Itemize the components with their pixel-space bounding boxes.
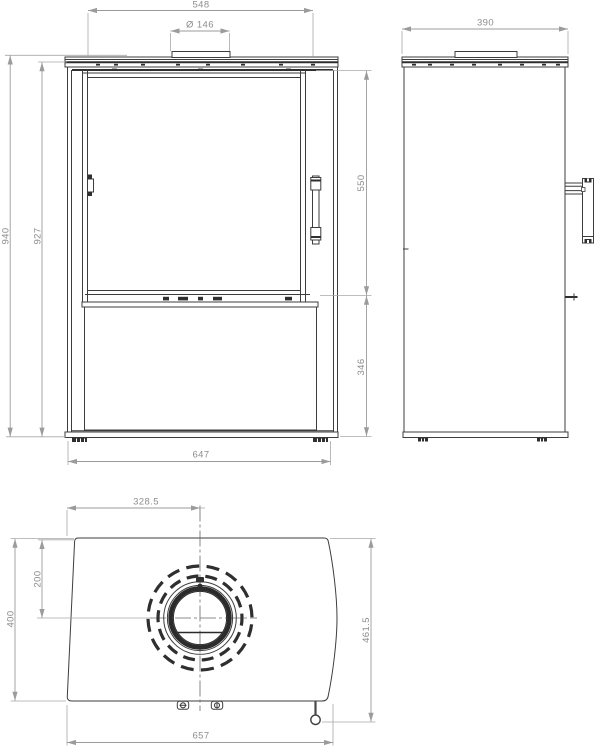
front-vent-band (82, 295, 318, 308)
side-view: 390 (402, 18, 594, 442)
side-door-handle (565, 179, 594, 244)
top-body-outline (67, 538, 337, 701)
front-top-plate (65, 57, 338, 71)
dim-front-base-height: 346 (340, 296, 372, 437)
dim-label-front-overall-height: 940 (1, 227, 12, 244)
side-feet (418, 438, 547, 442)
dim-front-body-height: 927 (33, 62, 68, 437)
side-air-lever (565, 294, 578, 301)
side-body (403, 67, 565, 432)
front-flue-collar (172, 52, 230, 58)
front-view: 548 Ø 146 940 927 550 (1, 0, 372, 465)
dim-label-top-flue-offset-y: 200 (33, 570, 44, 587)
dim-label-front-top-width: 548 (192, 0, 209, 11)
dim-label-top-overall-depth: 461.5 (361, 617, 372, 643)
front-door-handle (311, 176, 321, 244)
dim-top-flue-offset-x: 328.5 (67, 497, 205, 537)
dim-label-side-depth: 390 (477, 18, 494, 29)
dim-label-front-base-height: 346 (356, 358, 367, 375)
stove-technical-drawing: 548 Ø 146 940 927 550 (0, 0, 600, 750)
dim-label-top-flue-offset-x: 328.5 (133, 497, 159, 508)
side-flue-collar (455, 52, 517, 58)
drawing-canvas: 548 Ø 146 940 927 550 (0, 0, 600, 750)
dim-front-flue-diameter: Ø 146 (171, 20, 230, 52)
top-view: 328.5 200 400 461.5 657 (6, 497, 376, 746)
dim-front-door-height: 550 (316, 71, 372, 296)
side-bottom-plate (403, 432, 568, 438)
front-door-hinge (88, 175, 94, 197)
dim-side-depth: 390 (402, 18, 568, 55)
front-feet (72, 438, 328, 443)
front-base-panel (85, 307, 317, 430)
dim-label-top-body-depth: 400 (6, 610, 17, 627)
dim-label-front-body-height: 927 (33, 227, 44, 244)
dim-label-front-flue-diameter: Ø 146 (186, 20, 214, 31)
dim-top-body-depth: 400 (6, 539, 75, 702)
front-bottom-plate (65, 431, 338, 438)
top-handle-knob (311, 701, 320, 725)
dim-label-front-door-height: 550 (356, 174, 367, 191)
dim-label-front-base-width: 647 (192, 450, 209, 461)
front-door (83, 70, 306, 303)
dim-label-top-overall-width: 657 (192, 731, 209, 742)
dim-front-base-width: 647 (68, 441, 331, 465)
